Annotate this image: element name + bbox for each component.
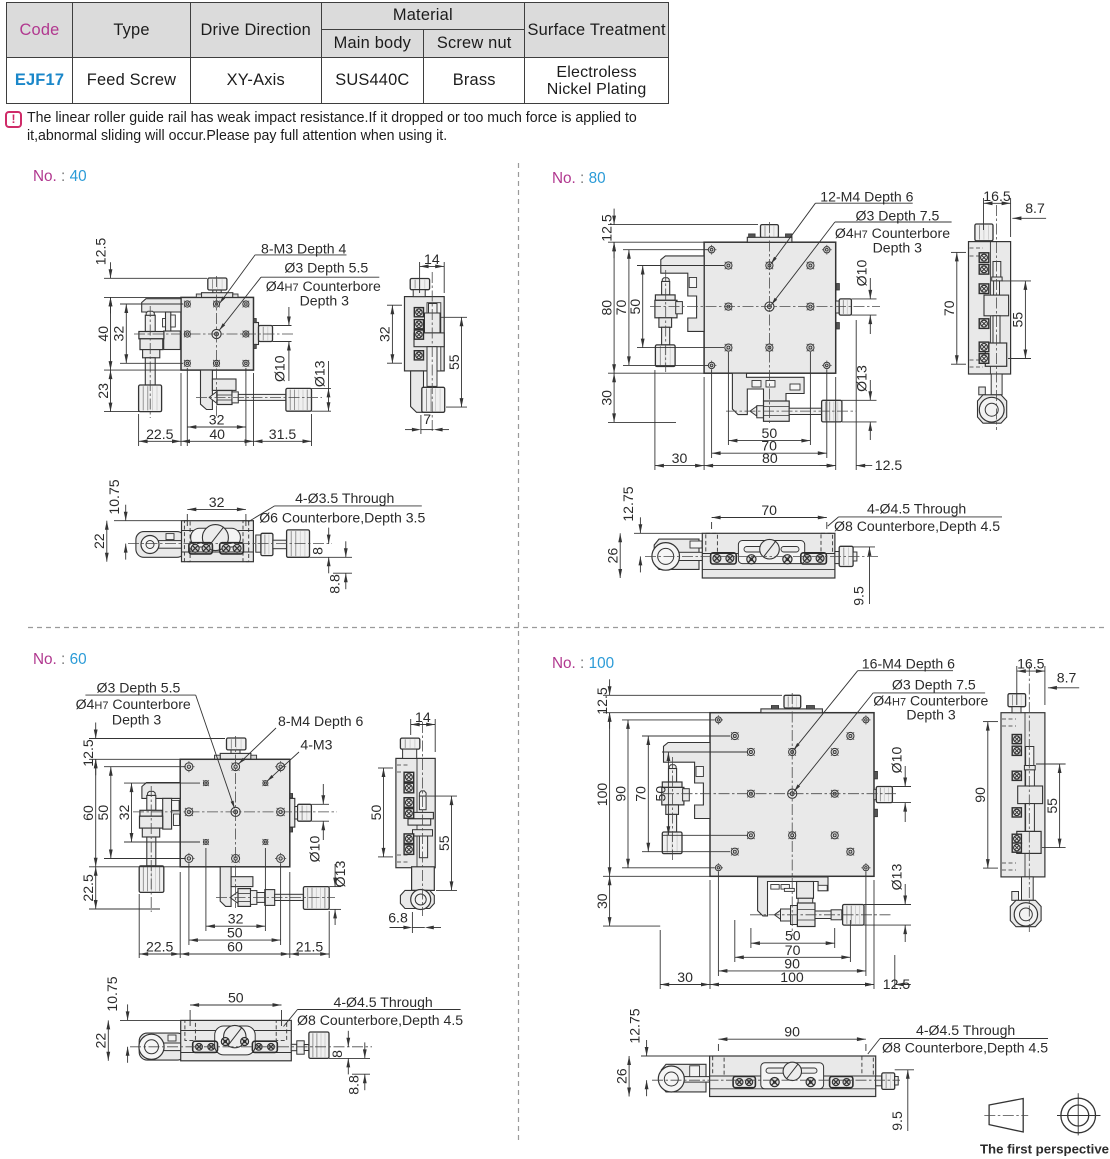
svg-text:40: 40 <box>95 326 111 342</box>
svg-text:7: 7 <box>423 411 431 427</box>
svg-text:60: 60 <box>227 939 243 955</box>
svg-text:100: 100 <box>594 783 610 807</box>
svg-text:80: 80 <box>598 300 614 316</box>
svg-text:16.5: 16.5 <box>1017 656 1045 672</box>
svg-text:Ø6 Counterbore,Depth 3.5: Ø6 Counterbore,Depth 3.5 <box>259 510 425 526</box>
svg-text:6.8: 6.8 <box>388 910 408 926</box>
svg-text:12-M4 Depth 6: 12-M4 Depth 6 <box>820 189 913 205</box>
svg-text:Ø3 Depth 7.5: Ø3 Depth 7.5 <box>856 207 940 223</box>
svg-text:70: 70 <box>941 300 957 316</box>
svg-text:Ø8 Counterbore,Depth 4.5: Ø8 Counterbore,Depth 4.5 <box>297 1012 463 1028</box>
svg-text:Ø3 Depth 5.5: Ø3 Depth 5.5 <box>97 679 181 695</box>
svg-text:90: 90 <box>612 786 628 802</box>
svg-text:12.5: 12.5 <box>599 214 615 242</box>
svg-text:4-Ø4.5 Through: 4-Ø4.5 Through <box>916 1022 1015 1038</box>
svg-text:Depth 3: Depth 3 <box>300 292 350 308</box>
svg-text:8-M4 Depth 6: 8-M4 Depth 6 <box>278 713 364 729</box>
svg-text:10.75: 10.75 <box>104 976 120 1011</box>
svg-text:70: 70 <box>761 502 777 518</box>
svg-text:4-Ø4.5 Through: 4-Ø4.5 Through <box>334 994 433 1010</box>
svg-text:60: 60 <box>80 805 96 821</box>
svg-text:55: 55 <box>446 354 462 370</box>
svg-text:26: 26 <box>605 548 621 564</box>
svg-text:22.5: 22.5 <box>80 874 96 902</box>
svg-text:30: 30 <box>677 969 693 985</box>
svg-text:12.5: 12.5 <box>883 976 911 992</box>
svg-text:30: 30 <box>598 390 614 406</box>
svg-text:12.5: 12.5 <box>80 739 96 767</box>
svg-text:22.5: 22.5 <box>146 939 174 955</box>
svg-text:Ø10: Ø10 <box>306 836 322 863</box>
svg-text:14: 14 <box>424 251 440 267</box>
svg-text:16-M4 Depth 6: 16-M4 Depth 6 <box>862 656 955 672</box>
svg-text:4-M3: 4-M3 <box>300 737 332 753</box>
svg-text:50: 50 <box>653 786 669 802</box>
svg-text:80: 80 <box>762 450 778 466</box>
svg-text:Ø13: Ø13 <box>888 864 904 891</box>
svg-text:32: 32 <box>116 805 132 821</box>
svg-text:Ø13: Ø13 <box>332 861 348 888</box>
svg-text:21.5: 21.5 <box>296 939 324 955</box>
svg-text:4-Ø3.5 Through: 4-Ø3.5 Through <box>295 490 394 506</box>
svg-text:16.5: 16.5 <box>983 188 1011 204</box>
svg-text:40: 40 <box>209 426 225 442</box>
svg-text:Ø4H7 Counterbore: Ø4H7 Counterbore <box>835 225 950 241</box>
svg-text:9.5: 9.5 <box>889 1111 905 1131</box>
svg-text:Ø4H7 Counterbore: Ø4H7 Counterbore <box>76 696 191 712</box>
svg-text:30: 30 <box>672 450 688 466</box>
svg-text:8: 8 <box>329 1050 345 1058</box>
svg-text:55: 55 <box>1010 312 1026 328</box>
svg-text:32: 32 <box>209 494 225 510</box>
svg-text:No. : 100: No. : 100 <box>552 655 614 672</box>
svg-text:8.8: 8.8 <box>326 574 342 594</box>
svg-text:31.5: 31.5 <box>269 426 297 442</box>
svg-text:8.8: 8.8 <box>346 1075 362 1095</box>
svg-text:55: 55 <box>436 835 452 851</box>
svg-text:Depth 3: Depth 3 <box>112 712 162 728</box>
svg-text:22: 22 <box>91 533 107 549</box>
svg-text:No. : 40: No. : 40 <box>33 168 87 185</box>
svg-text:Ø13: Ø13 <box>312 360 328 387</box>
svg-text:The first perspective: The first perspective <box>980 1142 1109 1157</box>
svg-text:Depth 3: Depth 3 <box>906 706 956 722</box>
svg-text:55: 55 <box>1044 798 1060 814</box>
svg-text:Ø10: Ø10 <box>272 355 288 382</box>
svg-text:12.75: 12.75 <box>620 486 636 521</box>
svg-text:50: 50 <box>95 805 111 821</box>
svg-text:No. : 80: No. : 80 <box>552 170 606 187</box>
svg-text:8: 8 <box>310 547 326 555</box>
svg-text:8-M3 Depth 4: 8-M3 Depth 4 <box>261 240 347 256</box>
svg-text:26: 26 <box>613 1068 629 1084</box>
svg-text:22: 22 <box>93 1033 109 1049</box>
svg-text:Ø10: Ø10 <box>854 260 870 287</box>
svg-text:50: 50 <box>228 990 244 1006</box>
svg-text:12.5: 12.5 <box>875 457 903 473</box>
svg-text:23: 23 <box>95 383 111 399</box>
svg-text:9.5: 9.5 <box>851 586 867 606</box>
svg-text:8.7: 8.7 <box>1025 200 1045 216</box>
svg-text:Depth 3: Depth 3 <box>873 240 923 256</box>
svg-text:No. : 60: No. : 60 <box>33 651 87 668</box>
svg-text:90: 90 <box>972 787 988 803</box>
svg-text:32: 32 <box>377 326 393 342</box>
svg-text:30: 30 <box>594 893 610 909</box>
svg-text:12.75: 12.75 <box>626 1008 642 1043</box>
svg-text:50: 50 <box>627 299 643 315</box>
svg-text:Ø8 Counterbore,Depth 4.5: Ø8 Counterbore,Depth 4.5 <box>834 518 1000 534</box>
svg-text:70: 70 <box>633 786 649 802</box>
svg-text:50: 50 <box>368 805 384 821</box>
svg-text:32: 32 <box>111 326 127 342</box>
svg-text:Ø8 Counterbore,Depth 4.5: Ø8 Counterbore,Depth 4.5 <box>882 1040 1048 1056</box>
svg-text:12.5: 12.5 <box>92 238 108 266</box>
svg-text:Ø13: Ø13 <box>854 365 870 392</box>
svg-text:10.75: 10.75 <box>106 479 122 514</box>
svg-text:Ø10: Ø10 <box>888 747 904 774</box>
svg-text:12.5: 12.5 <box>594 687 610 715</box>
svg-text:4-Ø4.5 Through: 4-Ø4.5 Through <box>867 501 966 517</box>
svg-text:8.7: 8.7 <box>1057 669 1077 685</box>
svg-text:Ø3 Depth 7.5: Ø3 Depth 7.5 <box>892 676 976 692</box>
svg-text:90: 90 <box>784 1024 800 1040</box>
svg-text:100: 100 <box>780 969 804 985</box>
svg-text:14: 14 <box>415 709 431 725</box>
svg-text:22.5: 22.5 <box>146 426 174 442</box>
svg-text:Ø3 Depth 5.5: Ø3 Depth 5.5 <box>284 260 368 276</box>
